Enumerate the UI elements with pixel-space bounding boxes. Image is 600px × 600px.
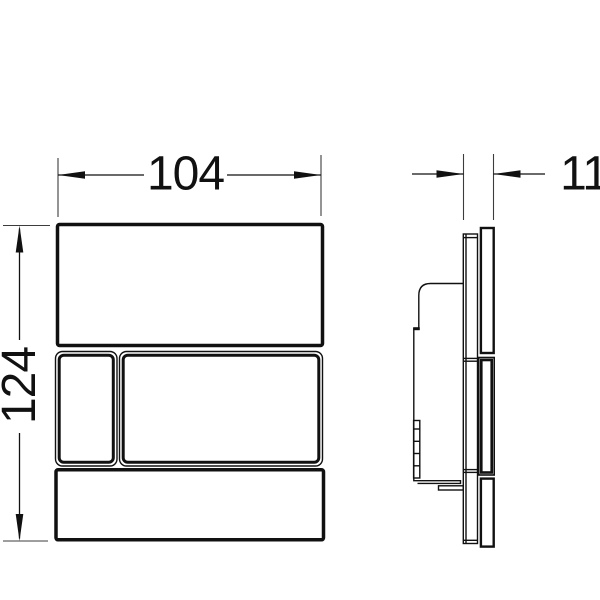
button-large [120, 352, 323, 467]
glass-plate-profile [479, 228, 494, 547]
arrowhead-down [16, 514, 24, 541]
dimension-width: 104 [58, 148, 321, 218]
width-dimension-label: 104 [147, 148, 224, 201]
arrowhead-right [294, 171, 321, 179]
housing-notch [413, 327, 420, 330]
button-large-inner-edge [123, 355, 319, 462]
arrowhead-inward-left [494, 170, 521, 178]
dimension-height: 124 [0, 226, 50, 542]
button-small-inner-edge [59, 355, 113, 462]
plate-top-panel [58, 225, 323, 346]
depth-dimension-label: 11 [560, 148, 600, 201]
glass-button-segment-inner [481, 360, 491, 473]
technical-drawing-page: 104 124 11 [0, 0, 600, 600]
housing-bottom-step [439, 486, 464, 490]
front-view [56, 225, 324, 540]
ratchet-strip [414, 421, 420, 479]
dimension-depth: 11 [412, 148, 600, 221]
arrowhead-up [16, 226, 24, 253]
button-small [56, 352, 118, 467]
side-view [413, 228, 494, 547]
plate-bottom-panel [56, 470, 324, 540]
arrowhead-inward-right [437, 170, 464, 178]
mount-housing-profile [414, 284, 464, 484]
button-large-outer-edge [120, 352, 323, 467]
technical-drawing-canvas: 104 124 11 [0, 0, 600, 600]
arrowhead-left [58, 171, 85, 179]
glass-top-segment [481, 228, 494, 353]
height-dimension-label: 124 [0, 347, 46, 424]
base-plate-profile [463, 234, 477, 544]
button-small-outer-edge [56, 352, 118, 467]
glass-bottom-segment [481, 479, 494, 547]
